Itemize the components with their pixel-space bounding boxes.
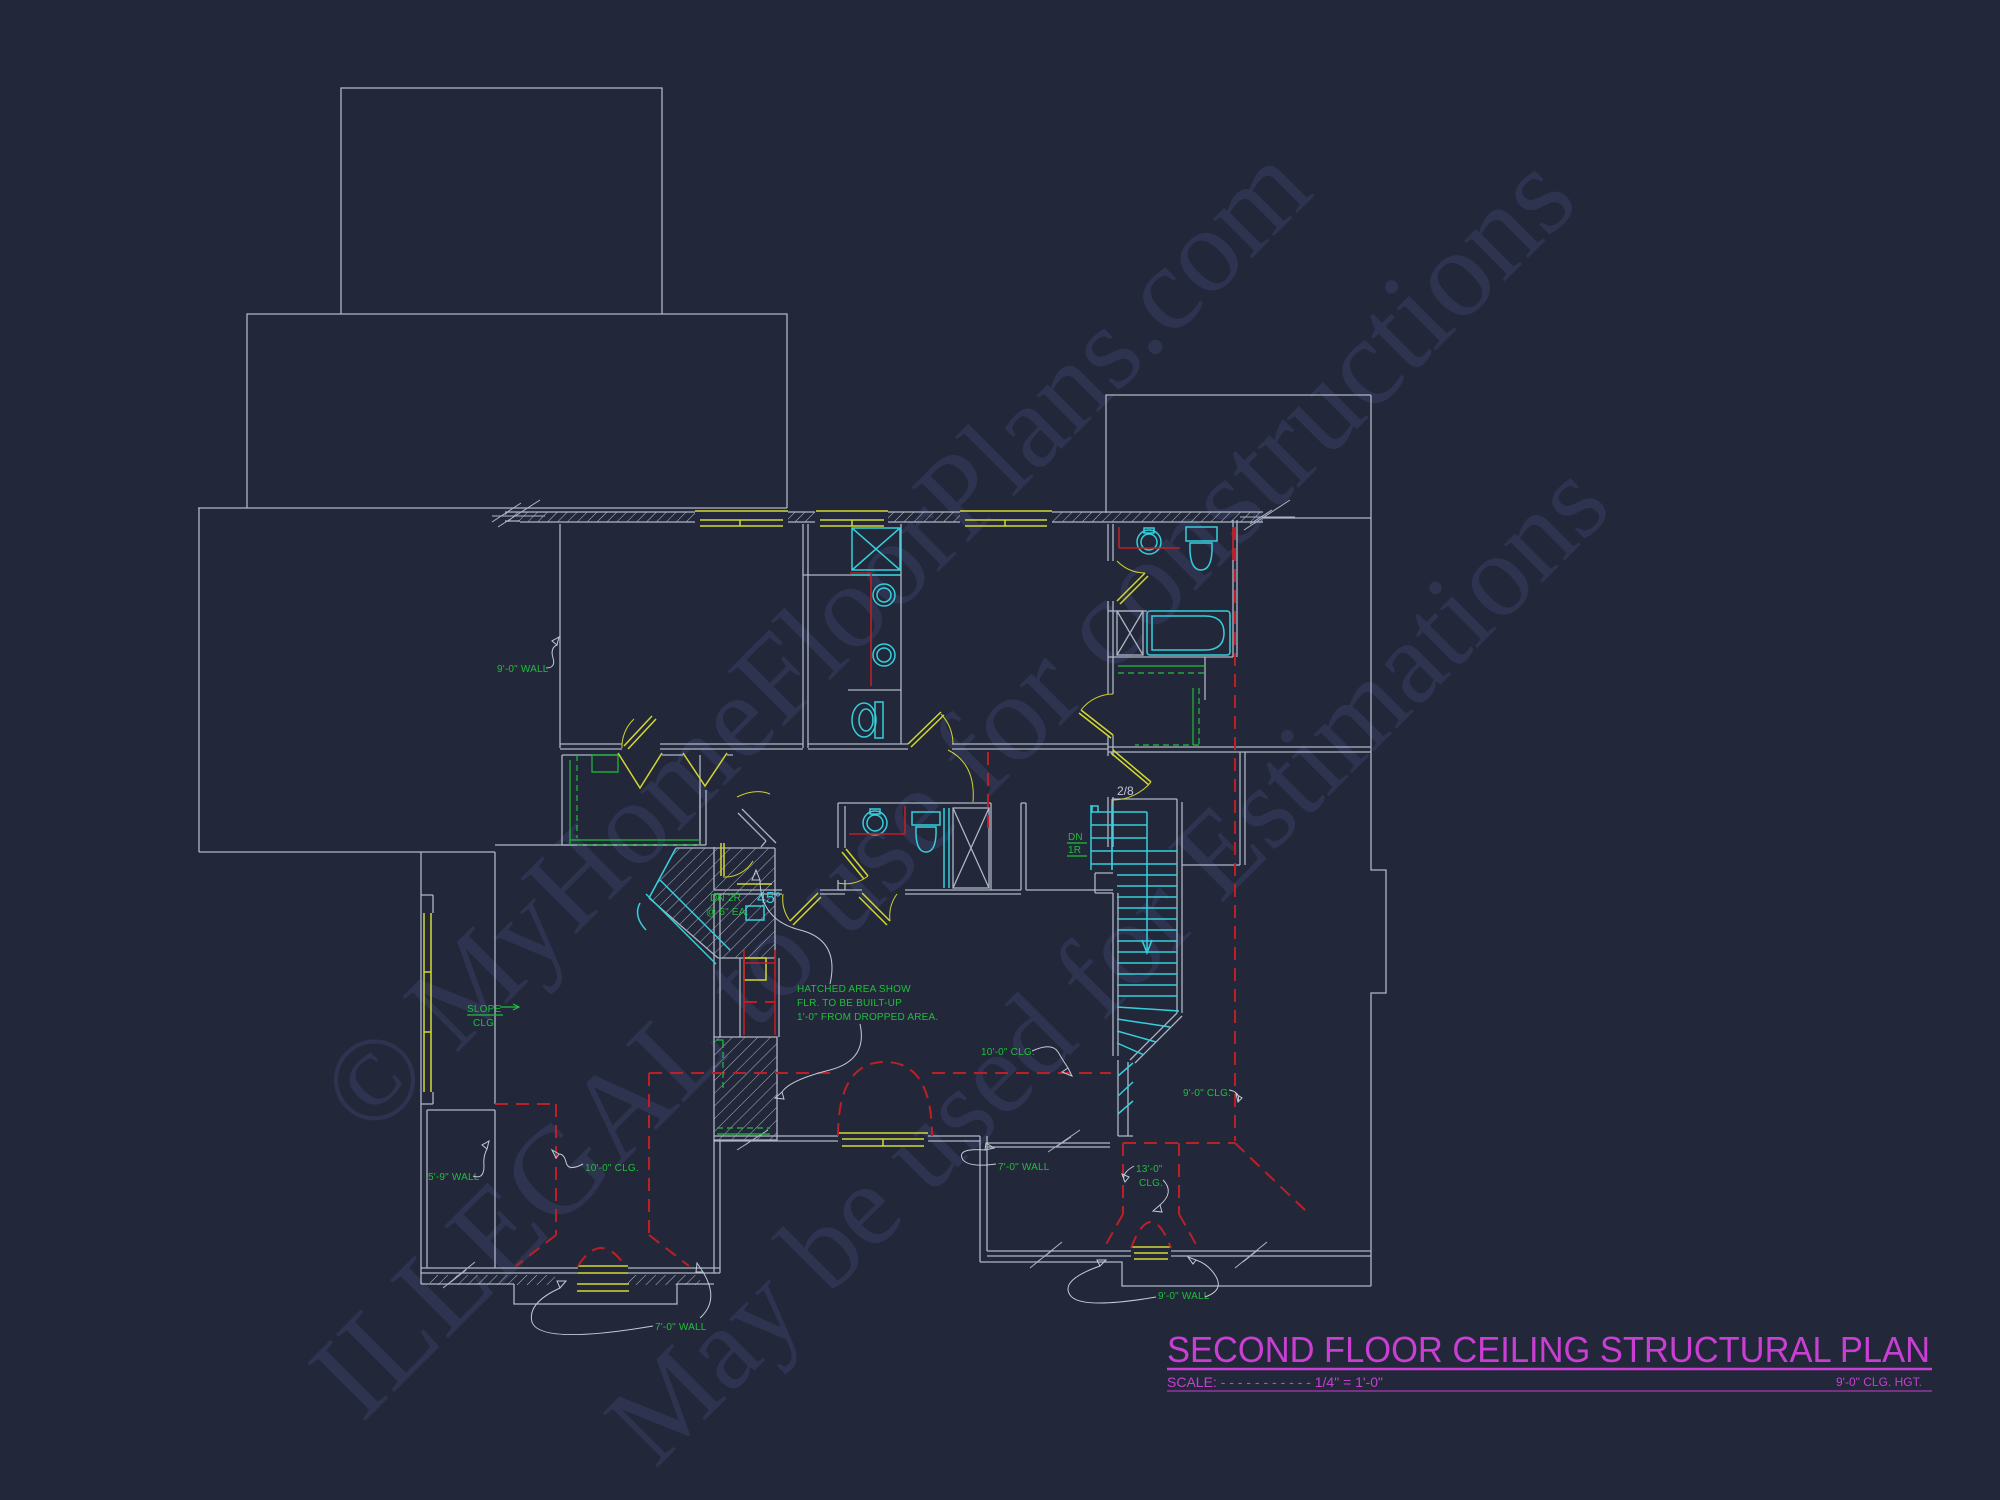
svg-text:SCALE: - - - - - - - - - - -: SCALE: - - - - - - - - - - - 1/4" = 1'-0… — [1167, 1374, 1383, 1390]
svg-text:10'-0" CLG.: 10'-0" CLG. — [981, 1047, 1035, 1058]
svg-text:9'-0" CLG. HGT.: 9'-0" CLG. HGT. — [1836, 1375, 1922, 1389]
svg-text:CLG.: CLG. — [1139, 1178, 1163, 1189]
svg-text:7'-0" WALL: 7'-0" WALL — [655, 1322, 707, 1333]
svg-text:9'-0" WALL: 9'-0" WALL — [497, 664, 549, 675]
svg-text:2/8: 2/8 — [1117, 784, 1134, 798]
svg-text:1R: 1R — [1068, 845, 1081, 856]
svg-text:CLG.: CLG. — [473, 1018, 497, 1029]
svg-text:DN: DN — [1068, 832, 1083, 843]
svg-text:13'-0": 13'-0" — [1136, 1164, 1163, 1175]
svg-text:DN 2R: DN 2R — [710, 893, 741, 904]
svg-text:5'-9" WALL: 5'-9" WALL — [428, 1172, 480, 1183]
svg-text:10'-0" CLG.: 10'-0" CLG. — [585, 1163, 639, 1174]
svg-text:SLOPE: SLOPE — [467, 1004, 501, 1015]
svg-text:ILLEGAL to use for constructio: ILLEGAL to use for constructions — [284, 127, 1601, 1444]
svg-text:1'-0" FROM DROPPED AREA.: 1'-0" FROM DROPPED AREA. — [797, 1012, 938, 1023]
svg-text:7'-0" WALL: 7'-0" WALL — [998, 1162, 1050, 1173]
svg-text:HATCHED AREA SHOW: HATCHED AREA SHOW — [797, 984, 911, 995]
svg-text:9'-0" WALL: 9'-0" WALL — [1158, 1291, 1210, 1302]
svg-text:SECOND FLOOR CEILING STRUCTURA: SECOND FLOOR CEILING STRUCTURAL PLAN — [1167, 1329, 1930, 1370]
svg-text:@ 6" EA.: @ 6" EA. — [706, 907, 749, 918]
svg-text:9'-0" CLG.: 9'-0" CLG. — [1183, 1088, 1231, 1099]
svg-text:FLR. TO BE BUILT-UP: FLR. TO BE BUILT-UP — [797, 998, 902, 1009]
